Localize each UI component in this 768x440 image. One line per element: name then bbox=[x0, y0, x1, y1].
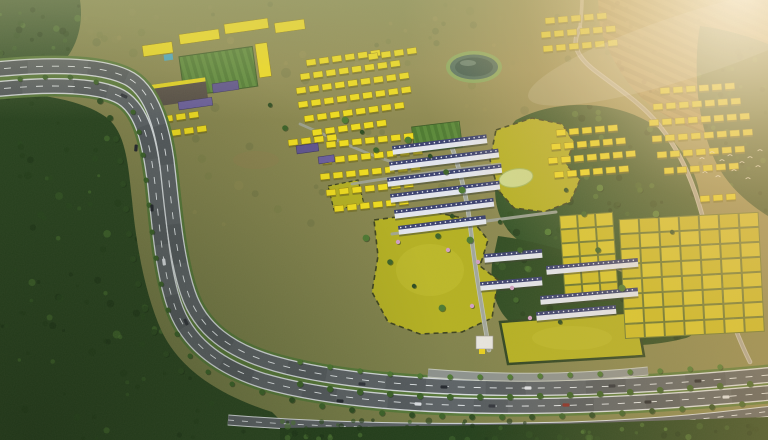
aerial-rendering-image: Aerial golden-hour 3D rendering of a mas… bbox=[0, 0, 768, 440]
film-grain bbox=[0, 0, 768, 440]
township-aerial-scene: Aerial golden-hour 3D rendering of a mas… bbox=[0, 0, 768, 440]
